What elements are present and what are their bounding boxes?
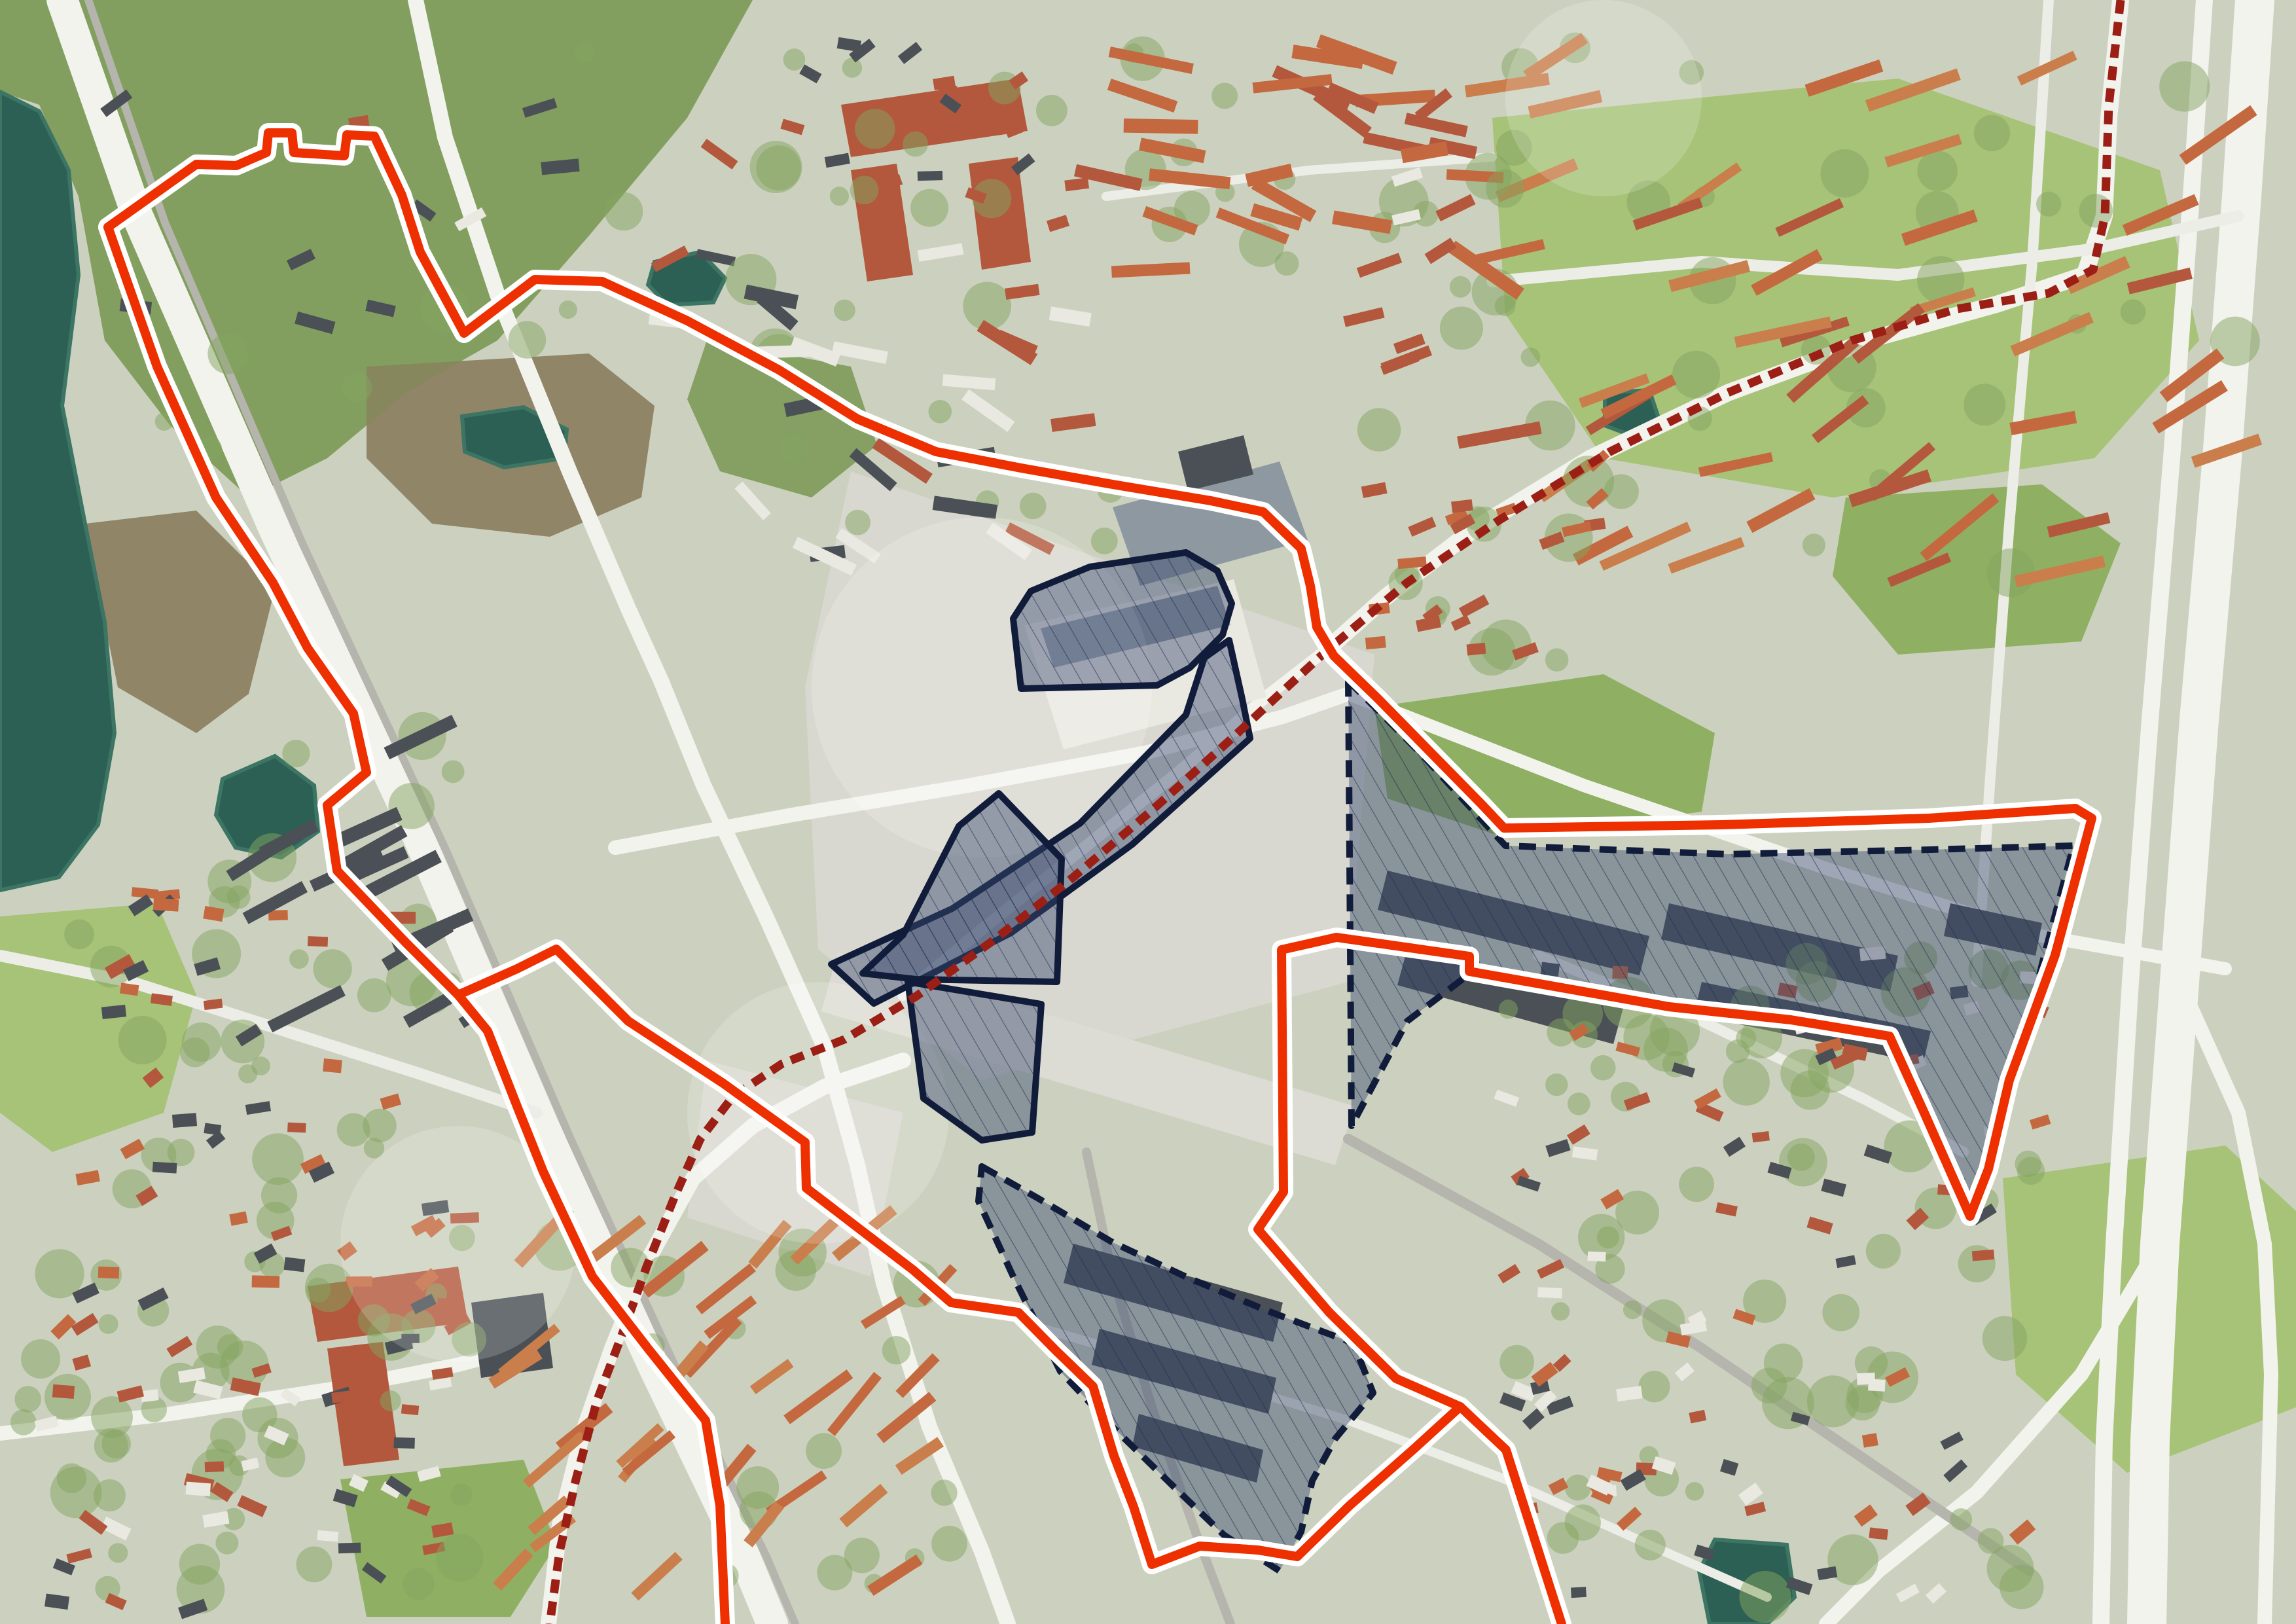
garden-patch bbox=[1638, 1371, 1670, 1402]
house bbox=[918, 171, 943, 181]
garden-patch bbox=[94, 1479, 126, 1511]
garden-patch bbox=[574, 43, 594, 63]
garden-patch bbox=[1521, 348, 1541, 367]
house bbox=[172, 1113, 197, 1128]
garden-patch bbox=[2017, 1157, 2045, 1185]
garden-patch bbox=[215, 1532, 238, 1555]
garden-patch bbox=[2159, 62, 2210, 112]
house bbox=[1869, 1527, 1888, 1540]
house bbox=[284, 1257, 306, 1272]
garden-patch bbox=[98, 1314, 118, 1334]
garden-patch bbox=[605, 192, 643, 231]
garden-patch bbox=[1827, 1534, 1878, 1585]
garden-patch bbox=[1672, 351, 1720, 399]
garden-patch bbox=[251, 1056, 270, 1075]
garden-patch bbox=[1495, 295, 1516, 316]
garden-patch bbox=[14, 1386, 41, 1413]
garden-patch bbox=[1274, 251, 1299, 276]
garden-patch bbox=[1545, 1074, 1568, 1096]
garden-patch bbox=[1568, 1092, 1590, 1115]
garden-patch bbox=[57, 1464, 87, 1494]
garden-patch bbox=[1726, 1039, 1749, 1063]
garden-patch bbox=[168, 1139, 195, 1166]
garden-patch bbox=[559, 300, 577, 319]
garden-patch bbox=[1357, 408, 1401, 451]
garden-patch bbox=[1623, 1301, 1642, 1320]
garden-patch bbox=[1779, 1138, 1827, 1187]
house bbox=[317, 1530, 338, 1542]
garden-patch bbox=[1723, 1058, 1770, 1106]
garden-patch bbox=[2121, 299, 2146, 325]
house bbox=[1467, 643, 1486, 656]
garden-patch bbox=[342, 372, 372, 403]
house bbox=[1571, 1587, 1587, 1598]
garden-patch bbox=[1679, 1167, 1714, 1202]
house bbox=[153, 898, 179, 912]
garden-patch bbox=[252, 1133, 304, 1185]
house bbox=[152, 1162, 177, 1174]
garden-patch bbox=[1685, 1482, 1704, 1500]
garden-patch bbox=[403, 1568, 435, 1600]
garden-patch bbox=[1974, 115, 2010, 151]
garden-patch bbox=[842, 58, 862, 77]
garden-patch bbox=[830, 187, 849, 206]
house bbox=[401, 1404, 419, 1415]
garden-patch bbox=[1211, 82, 1238, 109]
house bbox=[323, 1058, 342, 1073]
garden-patch bbox=[1440, 306, 1483, 350]
garden-patch bbox=[1822, 1294, 1859, 1331]
garden-patch bbox=[207, 333, 248, 374]
house bbox=[1537, 1287, 1562, 1298]
garden-patch bbox=[1486, 170, 1524, 208]
house bbox=[393, 1437, 414, 1449]
garden-patch bbox=[1950, 1508, 1972, 1530]
garden-patch bbox=[108, 1543, 128, 1562]
aerial-map-screenshot bbox=[0, 0, 2296, 1624]
garden-patch bbox=[1563, 456, 1614, 507]
garden-patch bbox=[101, 1430, 131, 1459]
garden-patch bbox=[289, 949, 309, 969]
garden-patch bbox=[306, 1278, 331, 1303]
house bbox=[1862, 1433, 1878, 1447]
garden-patch bbox=[2000, 1565, 2043, 1609]
garden-patch bbox=[21, 1339, 60, 1379]
house bbox=[52, 1384, 75, 1399]
garden-patch bbox=[1450, 276, 1471, 298]
garden-patch bbox=[1739, 1571, 1791, 1623]
garden-patch bbox=[1565, 1504, 1601, 1540]
garden-patch bbox=[1565, 1475, 1591, 1501]
garden-patch bbox=[1635, 1530, 1666, 1561]
house bbox=[205, 1461, 224, 1472]
garden-patch bbox=[296, 1547, 332, 1583]
garden-patch bbox=[509, 321, 546, 358]
garden-patch bbox=[783, 48, 806, 71]
garden-patch bbox=[1499, 1000, 1518, 1019]
glare-spot bbox=[1505, 0, 1702, 196]
house bbox=[876, 198, 901, 209]
garden-patch bbox=[1545, 648, 1569, 672]
house bbox=[101, 1005, 126, 1019]
house bbox=[308, 936, 328, 947]
garden-patch bbox=[10, 1409, 37, 1435]
garden-patch bbox=[834, 299, 855, 321]
garden-patch bbox=[845, 510, 870, 535]
garden-patch bbox=[1917, 151, 1958, 191]
garden-patch bbox=[928, 400, 952, 424]
garden-patch bbox=[1020, 493, 1047, 520]
garden-patch bbox=[1807, 1375, 1859, 1427]
garden-patch bbox=[882, 1336, 911, 1365]
garden-patch bbox=[1964, 384, 2005, 425]
garden-patch bbox=[1982, 1316, 2028, 1362]
garden-patch bbox=[436, 1534, 484, 1582]
house bbox=[1857, 1373, 1875, 1385]
garden-patch bbox=[1764, 1343, 1803, 1382]
house bbox=[1972, 1250, 1994, 1261]
garden-patch bbox=[910, 189, 948, 227]
garden-patch bbox=[1499, 1345, 1534, 1380]
garden-patch bbox=[931, 1479, 958, 1506]
house bbox=[252, 1275, 280, 1288]
garden-patch bbox=[118, 1016, 167, 1064]
garden-patch bbox=[806, 1433, 842, 1469]
garden-patch bbox=[442, 760, 465, 783]
garden-patch bbox=[357, 979, 391, 1013]
garden-patch bbox=[844, 1538, 880, 1573]
garden-patch bbox=[450, 1483, 473, 1506]
garden-patch bbox=[756, 145, 801, 190]
garden-patch bbox=[1551, 1302, 1570, 1320]
house bbox=[1365, 636, 1386, 650]
garden-patch bbox=[1590, 1055, 1616, 1081]
garden-patch bbox=[931, 1526, 967, 1562]
house bbox=[1124, 118, 1198, 134]
garden-patch bbox=[1821, 149, 1869, 198]
house bbox=[98, 1267, 119, 1279]
garden-patch bbox=[903, 132, 928, 157]
garden-patch bbox=[1803, 533, 1825, 556]
garden-patch bbox=[855, 109, 895, 149]
house bbox=[185, 1482, 211, 1496]
garden-patch bbox=[779, 433, 808, 463]
garden-patch bbox=[850, 175, 879, 204]
house bbox=[338, 1543, 361, 1554]
garden-patch bbox=[1978, 1528, 2004, 1554]
house bbox=[287, 1123, 306, 1133]
garden-patch bbox=[282, 740, 310, 767]
garden-patch bbox=[363, 1109, 396, 1142]
garden-patch bbox=[180, 1038, 209, 1067]
garden-patch bbox=[179, 1543, 220, 1584]
garden-patch bbox=[64, 919, 94, 949]
garden-patch bbox=[2036, 192, 2061, 217]
garden-patch bbox=[1036, 95, 1067, 126]
garden-patch bbox=[1866, 1234, 1901, 1269]
house bbox=[1587, 1252, 1605, 1262]
garden-patch bbox=[313, 949, 351, 988]
garden-patch bbox=[1091, 528, 1118, 554]
garden-patch bbox=[380, 1390, 401, 1411]
